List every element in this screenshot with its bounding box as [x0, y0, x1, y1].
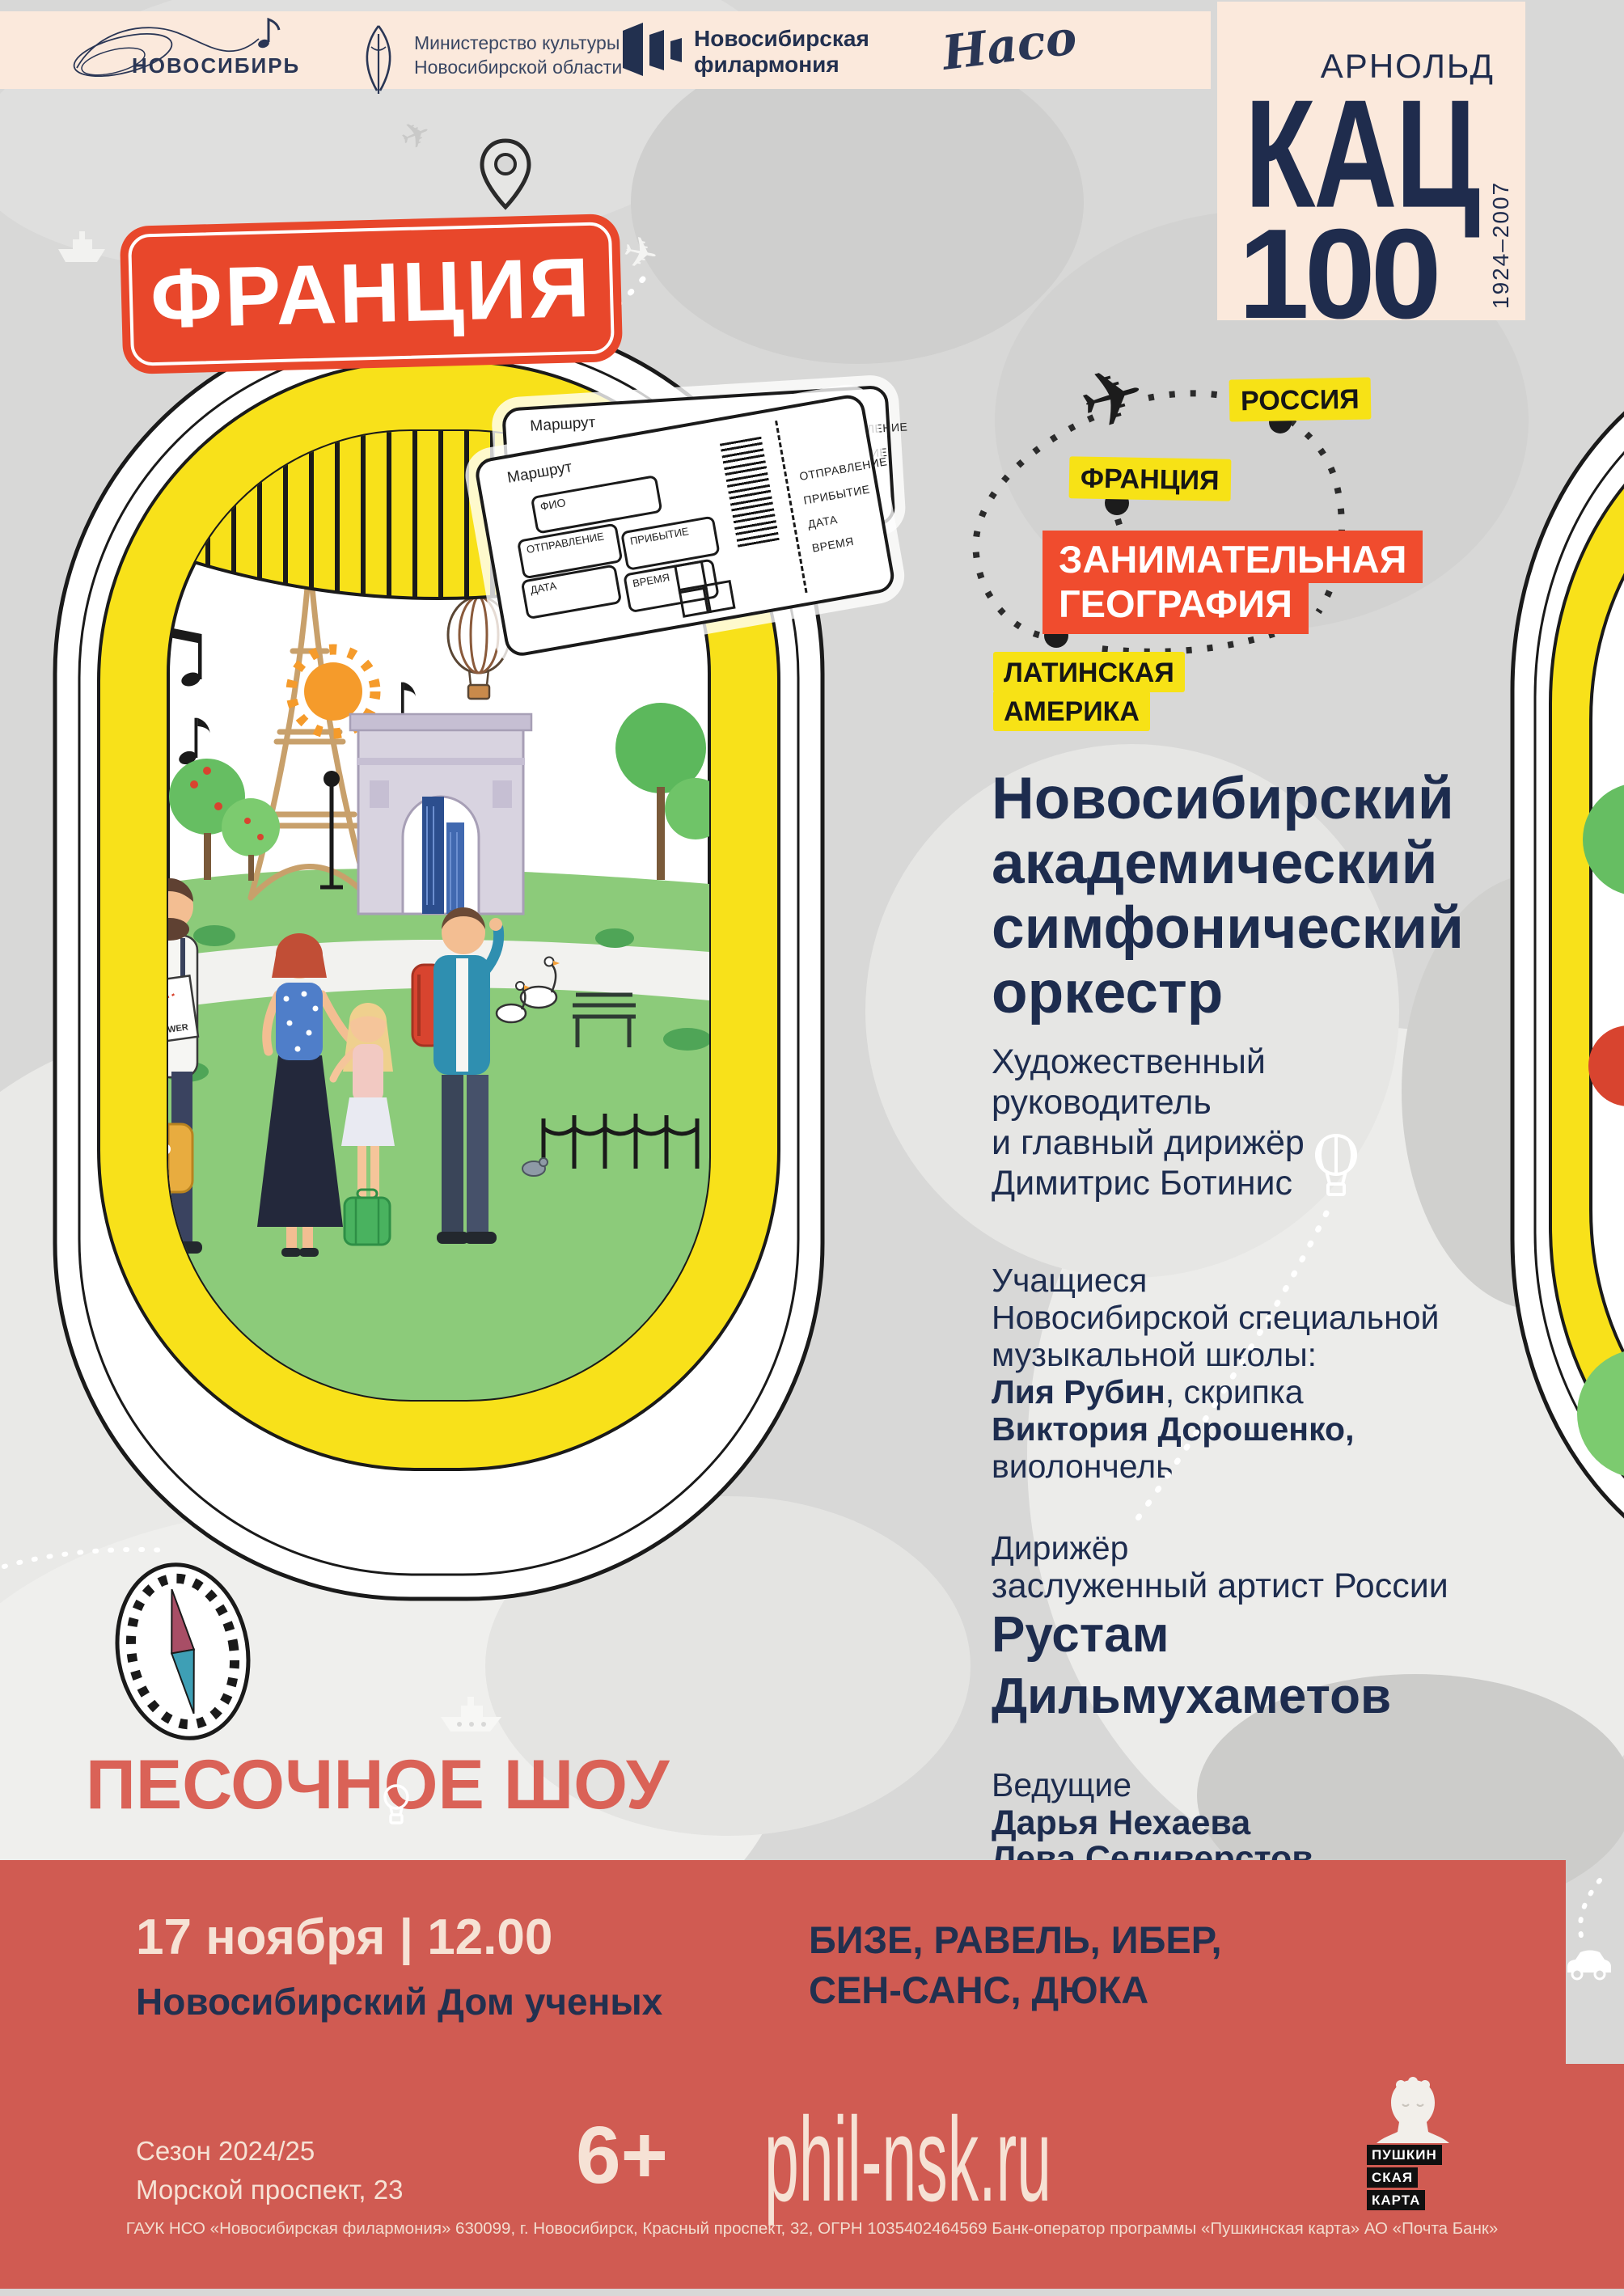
orchestra-title: Новосибирский академический симфонически…: [992, 767, 1535, 1025]
katz-100-block: АРНОЛЬД КАЦ 100 1924–2007: [1217, 2, 1525, 320]
host-name: Дарья Нехаева: [992, 1805, 1535, 1841]
series-line1: ЗАНИМАТЕЛЬНАЯ: [1042, 531, 1423, 583]
philharmonic-bars-icon: [623, 23, 687, 76]
composers-line: БИЗЕ, РАВЕЛЬ, ИБЕР,: [809, 1915, 1222, 1965]
latin-line1: ЛАТИНСКАЯ: [993, 652, 1185, 692]
pushkin-card-line3: КАРТА: [1367, 2190, 1425, 2210]
ministry-of-culture-icon: [357, 23, 400, 97]
ship-icon-bottom: [437, 1686, 505, 1735]
car-icon-right: [1563, 1943, 1614, 1983]
ministry-line2: Новосибирской области: [414, 55, 622, 79]
ticket-square: [702, 580, 736, 614]
philharmonic-logo-label: Новосибирская филармония: [694, 26, 869, 78]
label-series-title: ЗАНИМАТЕЛЬНАЯ ГЕОГРАФИЯ: [1042, 531, 1423, 634]
ministry-line1: Министерство культуры: [414, 31, 622, 55]
philharmonic-line1: Новосибирская: [694, 26, 869, 52]
composers-line: СЕН-САНС, ДЮКА: [809, 1965, 1222, 2015]
location-pin-icon: [479, 136, 532, 214]
orchestra-line: академический: [992, 831, 1535, 896]
event-venue: Новосибирский Дом ученых: [136, 1980, 662, 2023]
katz-years: 1924–2007: [1488, 165, 1514, 309]
season-label: Сезон 2024/25: [136, 2132, 403, 2171]
director-line: Художественный: [992, 1042, 1535, 1082]
ticket-perforation: [775, 421, 807, 593]
philharmonic-line2: филармония: [694, 52, 869, 78]
composers-list: БИЗЕ, РАВЕЛЬ, ИБЕР, СЕН-САНС, ДЮКА: [809, 1915, 1222, 2015]
label-russia: РОССИЯ: [1229, 377, 1372, 421]
season-address: Сезон 2024/25 Морской проспект, 23: [136, 2132, 403, 2209]
website-url: phil-nsk.ru: [764, 2091, 1051, 2229]
label-france: ФРАНЦИЯ: [1069, 456, 1231, 501]
ministry-logo-label: Министерство культуры Новосибирской обла…: [414, 31, 622, 79]
footer-band-right-fill: [1566, 2064, 1624, 2289]
white-dotted-trail-left: [0, 1533, 170, 1581]
pushkin-bust-icon: [1368, 2075, 1457, 2143]
katz-number: 100: [1238, 199, 1437, 349]
conductor-block: Дирижёр заслуженный артист России Рустам…: [992, 1529, 1535, 1727]
poster: НОВОСИБИРЬ Министерство культуры Новосиб…: [0, 0, 1624, 2296]
pushkin-card-line2: СКАЯ: [1367, 2167, 1418, 2188]
series-line2: ГЕОГРАФИЯ: [1042, 583, 1309, 634]
pushkin-card-line1: ПУШКИН: [1367, 2145, 1442, 2165]
address-label: Морской проспект, 23: [136, 2171, 403, 2209]
age-rating-badge: 6+: [576, 2109, 668, 2202]
legal-fine-print: ГАУК НСО «Новосибирская филармония» 6300…: [0, 2219, 1624, 2239]
hosts-label: Ведущие: [992, 1765, 1535, 1805]
white-dotted-trail-right: [1567, 1876, 1624, 1941]
latin-line2: АМЕРИКА: [993, 691, 1150, 731]
conductor-name-line: Рустам: [992, 1605, 1535, 1666]
ticket-stub-labels: ОТПРАВЛЕНИЕ ПРИБЫТИЕ ДАТА ВРЕМЯ: [797, 449, 902, 560]
orchestra-line: оркестр: [992, 961, 1535, 1025]
pushkin-card-logo: ПУШКИН СКАЯ КАРТА: [1367, 2075, 1464, 2213]
ticket-route-label: Маршрут: [506, 459, 574, 488]
white-balloon-with-trail: [1124, 1124, 1375, 1545]
green-suitcase: [345, 1190, 390, 1245]
ticket-barcode: [720, 437, 780, 548]
conductor-name-line: Дильмухаметов: [992, 1666, 1535, 1727]
country-badge-label: ФРАНЦИЯ: [120, 214, 624, 374]
director-line: руководитель: [992, 1082, 1535, 1123]
conductor-honor: заслуженный артист России: [992, 1567, 1535, 1605]
event-datetime: 17 ноября | 12.00: [136, 1909, 552, 1966]
novosibir-logo-label: НОВОСИБИРЬ: [132, 53, 300, 78]
orchestra-line: симфонический: [992, 896, 1535, 961]
label-latin-america: ЛАТИНСКАЯ АМЕРИКА: [993, 652, 1185, 731]
orchestra-line: Новосибирский: [992, 767, 1535, 831]
ticket-route-label: Маршрут: [530, 414, 596, 436]
ship-icon: [55, 225, 108, 265]
compass-icon: [112, 1554, 257, 1748]
country-badge: ФРАНЦИЯ: [120, 214, 624, 374]
small-white-balloon-icon: [379, 1783, 416, 1835]
sand-show-title: ПЕСОЧНОЕ ШОУ: [86, 1745, 669, 1825]
